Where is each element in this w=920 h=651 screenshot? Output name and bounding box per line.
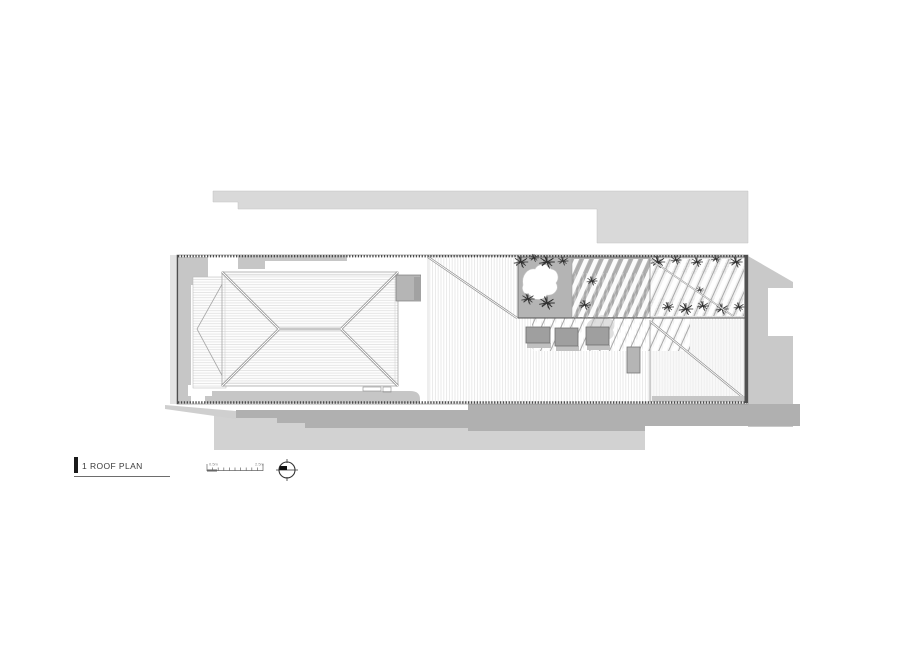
scale-start-label: 0.5m: [209, 462, 219, 467]
boundary-strip: [170, 255, 177, 404]
skylight: [586, 327, 609, 345]
parapet-edge-right: [745, 255, 749, 403]
skylight: [526, 327, 550, 343]
building-shadow-right: [748, 256, 793, 427]
box-gutter: [421, 258, 428, 402]
chimney: [396, 275, 421, 301]
verandah-roof: [193, 277, 226, 388]
scale-end-label: 2.5m: [255, 462, 265, 467]
shadow-notch: [768, 288, 793, 336]
roof-plan-drawing: 1 ROOF PLAN 0.5m 2.5m: [0, 0, 920, 651]
roof-hatch: [627, 347, 640, 373]
title-marker-bar: [74, 457, 78, 473]
skylight: [555, 328, 578, 346]
hip-roof: [222, 272, 398, 386]
roof-plan-sheet: 1 ROOF PLAN 0.5m 2.5m: [0, 0, 920, 651]
drawing-title: ROOF PLAN: [90, 461, 143, 471]
drawing-number: 1: [82, 461, 87, 471]
